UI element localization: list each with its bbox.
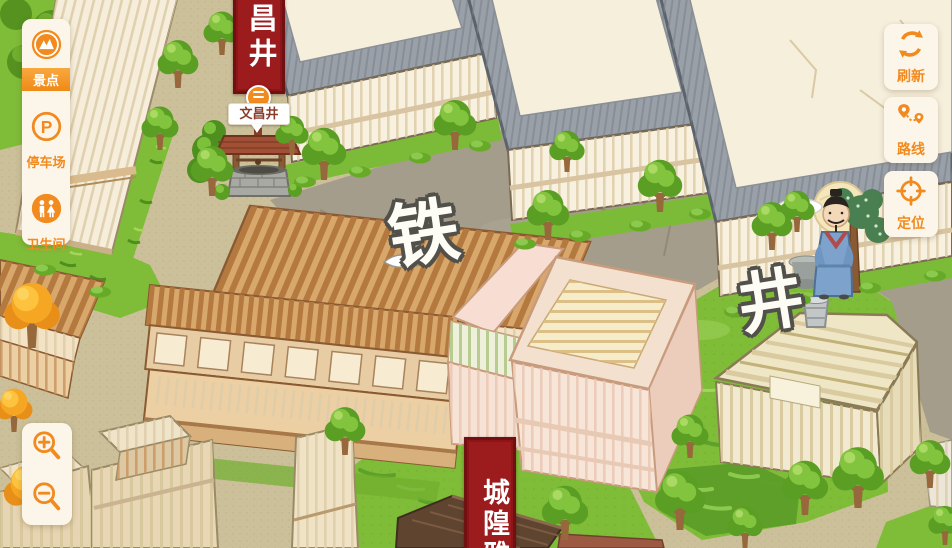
scenic-area-map-app: 文昌井 城隍雅 文昌井 铁 井 景点 P 停车场 — [0, 0, 952, 548]
banner-wenchang-well: 文昌井 — [233, 0, 285, 94]
poi-marker-arrow — [251, 124, 263, 133]
zoom-out-button[interactable] — [25, 478, 69, 522]
zoom-panel — [22, 423, 72, 525]
locate-icon — [895, 175, 927, 212]
sidebar-item-label: 卫生间 — [22, 232, 70, 255]
zoom-in-icon — [30, 429, 64, 468]
locate-button[interactable]: 定位 — [884, 171, 938, 237]
route-button[interactable]: 路线 — [884, 97, 938, 163]
zoom-out-icon — [30, 480, 64, 519]
locate-label: 定位 — [897, 213, 925, 233]
svg-text:P: P — [40, 117, 52, 137]
poi-marker-label[interactable]: 文昌井 — [228, 103, 290, 125]
banner-chenghuang: 城隍雅 — [464, 437, 516, 548]
refresh-label: 刷新 — [897, 66, 925, 86]
scenic-spot-icon — [30, 28, 63, 66]
route-icon — [895, 101, 927, 138]
map-legend-panel: 景点 P 停车场 卫生间 — [22, 19, 70, 245]
zoom-in-button[interactable] — [25, 427, 69, 471]
route-label: 路线 — [897, 139, 925, 159]
sidebar-item-scenic-spots[interactable]: 景点 — [22, 28, 70, 91]
refresh-icon — [895, 28, 927, 65]
sidebar-item-restroom[interactable]: 卫生间 — [22, 192, 70, 255]
parking-icon: P — [30, 110, 63, 148]
sidebar-item-parking[interactable]: P 停车场 — [22, 110, 70, 173]
sidebar-item-label: 停车场 — [22, 150, 70, 173]
sidebar-item-label: 景点 — [22, 68, 70, 91]
restroom-icon — [30, 192, 63, 230]
refresh-button[interactable]: 刷新 — [884, 24, 938, 90]
